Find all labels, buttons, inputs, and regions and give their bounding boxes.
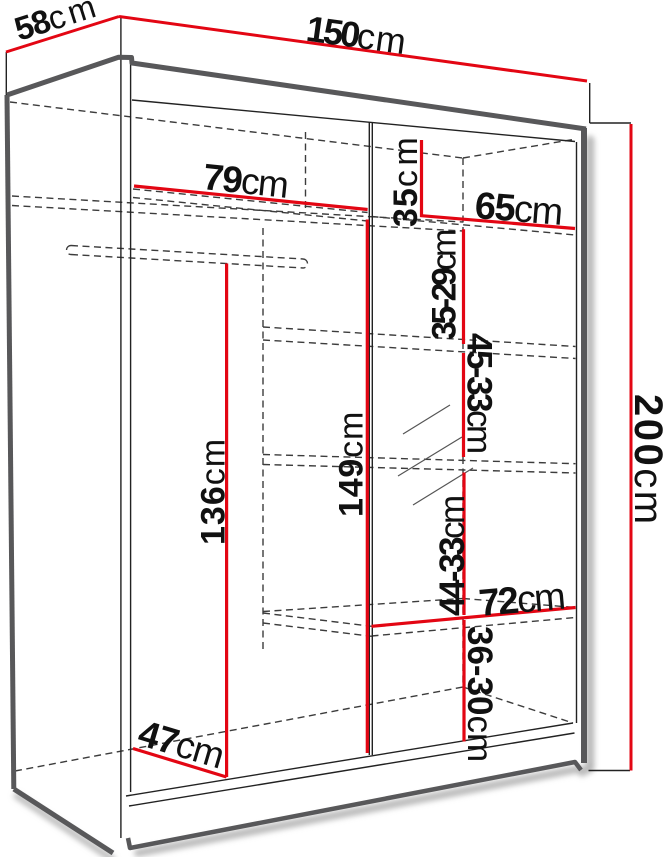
svg-text:65cm: 65cm bbox=[473, 185, 563, 234]
svg-text:72cm: 72cm bbox=[477, 576, 566, 625]
svg-text:36-30cm: 36-30cm bbox=[460, 626, 499, 762]
svg-text:35-29cm: 35-29cm bbox=[426, 230, 464, 340]
svg-text:200cm: 200cm bbox=[626, 394, 665, 527]
svg-text:136cm: 136cm bbox=[195, 438, 233, 545]
svg-text:44-33cm: 44-33cm bbox=[433, 497, 472, 616]
svg-text:149cm: 149cm bbox=[333, 411, 371, 517]
svg-text:35cm: 35cm bbox=[387, 133, 425, 227]
svg-text:79cm: 79cm bbox=[201, 156, 289, 206]
svg-text:45-33cm: 45-33cm bbox=[460, 333, 499, 452]
